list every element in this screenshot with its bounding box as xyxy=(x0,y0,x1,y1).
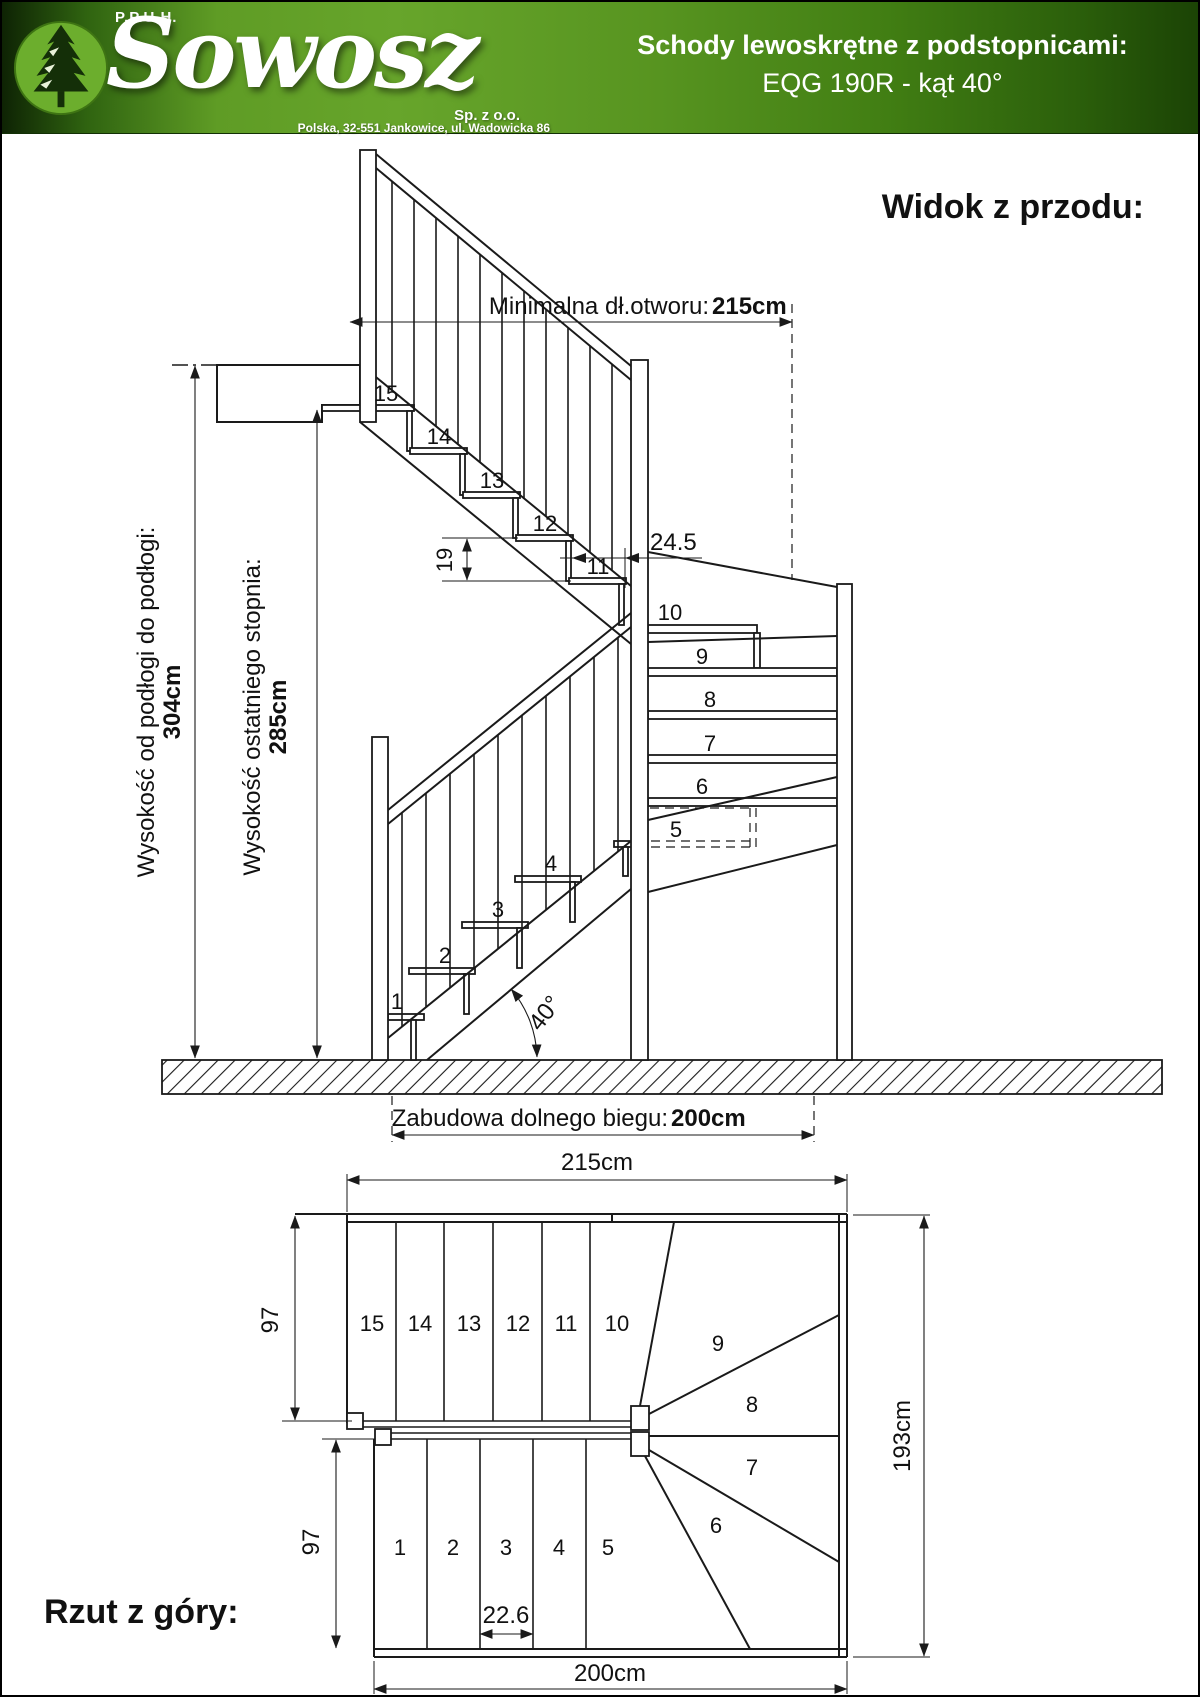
front-view-title: Widok z przodu: xyxy=(882,188,1144,226)
plan-center-post xyxy=(631,1406,649,1430)
step-label: 4 xyxy=(545,851,557,876)
dim-riser-height: 19 xyxy=(432,538,571,581)
upper-floor-slab xyxy=(217,365,360,422)
plan-center-post xyxy=(631,1432,649,1456)
step-label: 14 xyxy=(427,424,451,449)
dim-plan-depth: 193cm xyxy=(853,1215,930,1657)
step-label: 10 xyxy=(605,1311,629,1336)
dim-value: 97 xyxy=(257,1307,284,1334)
plan-winder-lines xyxy=(640,1222,839,1649)
technical-drawing: Widok z przodu: xyxy=(2,2,1200,1697)
step-label: 15 xyxy=(360,1311,384,1336)
dim-angle: 40° xyxy=(511,989,567,1057)
step-label: 7 xyxy=(704,731,716,756)
step-label: 13 xyxy=(457,1311,481,1336)
dim-label: Wysokość ostatniego stopnia: xyxy=(239,558,266,875)
step-label: 6 xyxy=(696,774,708,799)
step-label: 9 xyxy=(712,1331,724,1356)
plan-post xyxy=(375,1429,391,1445)
dim-last-step-height: Wysokość ostatniego stopnia: 285cm xyxy=(239,410,317,1058)
plan-step-dividers xyxy=(396,1222,590,1649)
step-label: 5 xyxy=(602,1535,614,1560)
lower-newel-post xyxy=(372,737,388,1060)
step-label: 14 xyxy=(408,1311,432,1336)
step-label: 3 xyxy=(492,897,504,922)
dim-label: Wysokość od podłogi do podłogi: xyxy=(133,527,160,878)
dim-value: 285cm xyxy=(265,680,292,755)
dim-value: 40° xyxy=(523,991,567,1036)
dim-lower-flight-depth: 97 xyxy=(298,1439,375,1648)
lower-railing xyxy=(388,613,631,1060)
top-view: Rzut z góry: xyxy=(44,1149,930,1694)
front-view: Widok z przodu: xyxy=(133,150,1162,1142)
step-label: 12 xyxy=(506,1311,530,1336)
right-newel-post xyxy=(837,584,852,1060)
step-label: 11 xyxy=(555,1311,578,1336)
step-label: 13 xyxy=(480,468,504,493)
step-label: 3 xyxy=(500,1535,512,1560)
step-label: 2 xyxy=(439,943,451,968)
upper-balusters xyxy=(392,181,612,571)
dim-plan-bottom-width: 200cm xyxy=(374,1660,847,1694)
dim-value: 193cm xyxy=(889,1400,916,1472)
dim-value: 22.6 xyxy=(483,1602,530,1629)
step-label: 5 xyxy=(670,817,682,842)
step-label: 7 xyxy=(746,1455,758,1480)
dim-label: Zabudowa dolnego biegu: xyxy=(392,1105,668,1132)
top-view-title: Rzut z góry: xyxy=(44,1593,239,1631)
dim-value: 200cm xyxy=(671,1105,746,1132)
dim-value: 215cm xyxy=(712,293,787,320)
spec-sheet-page: P.P.U.H. Sowosz Sp. z o.o. Polska, 32-55… xyxy=(0,0,1200,1697)
dim-plan-width: 215cm xyxy=(347,1149,847,1212)
plan-railing xyxy=(347,1406,649,1456)
step-label: 9 xyxy=(696,644,708,669)
dim-value: 215cm xyxy=(561,1149,633,1176)
dim-value: 304cm xyxy=(159,665,186,740)
step-label: 2 xyxy=(447,1535,459,1560)
step-label: 1 xyxy=(391,989,403,1014)
step-label: 12 xyxy=(533,511,557,536)
step-label: 10 xyxy=(658,600,682,625)
step-label: 1 xyxy=(394,1535,406,1560)
dim-value: 19 xyxy=(432,548,457,572)
dim-value: 24.5 xyxy=(650,529,697,556)
step-label: 4 xyxy=(553,1535,565,1560)
ground-floor-hatch xyxy=(162,1060,1162,1094)
dim-value: 200cm xyxy=(574,1660,646,1687)
step-label: 8 xyxy=(746,1392,758,1417)
dim-upper-flight-depth: 97 xyxy=(257,1216,352,1421)
dim-value: 97 xyxy=(298,1529,325,1556)
dim-tread-width: 22.6 xyxy=(480,1602,533,1634)
lower-flight-steps xyxy=(388,876,581,1060)
step-label: 8 xyxy=(704,687,716,712)
central-newel-post xyxy=(631,360,648,1060)
step-label: 6 xyxy=(710,1513,722,1538)
dim-floor-to-floor: Wysokość od podłogi do podłogi: 304cm xyxy=(133,366,195,1058)
step-label: 15 xyxy=(374,381,398,406)
dim-label: Minimalna dł.otworu: xyxy=(489,293,709,320)
dim-lower-run: Zabudowa dolnego biegu: 200cm xyxy=(392,1096,814,1142)
